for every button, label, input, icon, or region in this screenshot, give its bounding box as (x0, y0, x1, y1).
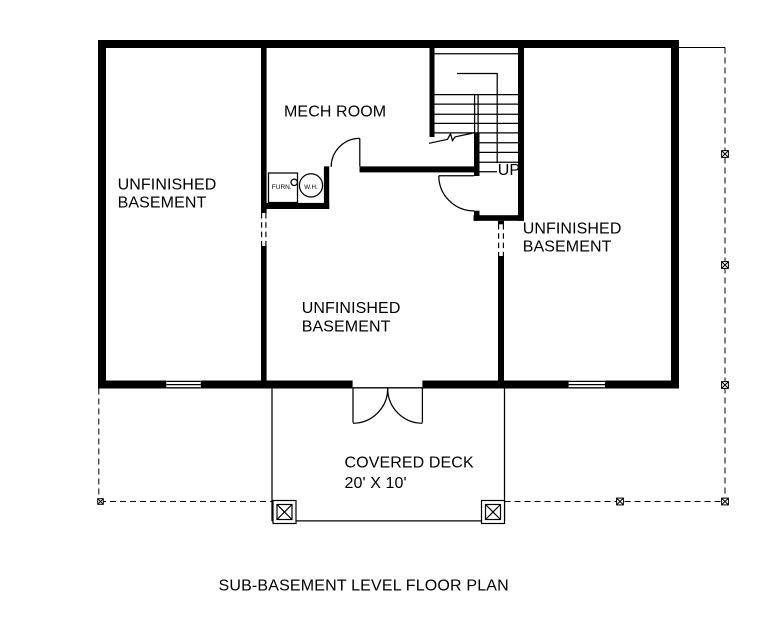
svg-text:BASEMENT: BASEMENT (523, 239, 612, 256)
svg-text:FURN.: FURN. (272, 184, 292, 191)
svg-text:BASEMENT: BASEMENT (118, 195, 207, 212)
svg-text:UNFINISHED: UNFINISHED (118, 176, 217, 193)
svg-text:COVERED DECK: COVERED DECK (345, 455, 474, 472)
svg-text:SUB-BASEMENT LEVEL FLOOR PLAN: SUB-BASEMENT LEVEL FLOOR PLAN (219, 577, 509, 594)
svg-text:20' X 10': 20' X 10' (345, 475, 407, 492)
svg-text:MECH ROOM: MECH ROOM (284, 103, 386, 120)
svg-text:UP: UP (498, 162, 520, 179)
svg-text:W.H.: W.H. (304, 184, 318, 191)
svg-text:UNFINISHED: UNFINISHED (523, 221, 622, 238)
svg-text:UNFINISHED: UNFINISHED (302, 300, 401, 317)
svg-text:BASEMENT: BASEMENT (302, 319, 391, 336)
